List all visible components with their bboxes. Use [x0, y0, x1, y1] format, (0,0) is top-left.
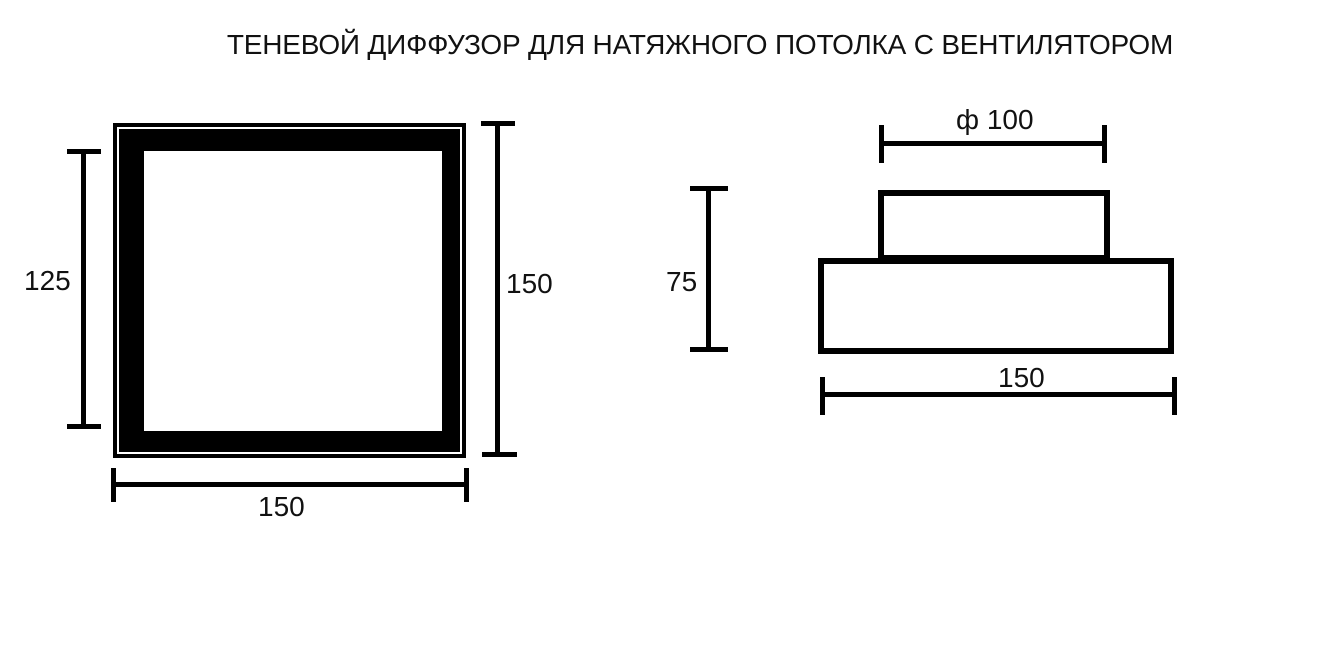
dim-line — [706, 188, 711, 350]
dim-line — [113, 482, 467, 487]
drawing-canvas: ТЕНЕВОЙ ДИФФУЗОР ДЛЯ НАТЯЖНОГО ПОТОЛКА С… — [0, 0, 1328, 669]
dim-tick — [1102, 125, 1107, 163]
dim-label-side-diameter: ф 100 — [956, 104, 1034, 136]
dim-line — [495, 123, 500, 455]
front-view-opening — [144, 151, 442, 431]
front-view-frame — [119, 129, 460, 452]
drawing-title: ТЕНЕВОЙ ДИФФУЗОР ДЛЯ НАТЯЖНОГО ПОТОЛКА С… — [227, 29, 1173, 61]
dim-tick — [1172, 377, 1177, 415]
front-view-outer-square — [113, 123, 466, 458]
side-view-duct-rect — [878, 190, 1110, 261]
dim-front-inner-height — [66, 149, 102, 429]
dim-label-side-height: 75 — [666, 266, 697, 298]
dim-tick — [482, 452, 517, 457]
dim-label-side-width: 150 — [998, 362, 1045, 394]
dim-tick — [67, 424, 101, 429]
side-view-body-rect — [818, 258, 1174, 354]
dim-label-front-inner-height: 125 — [24, 265, 71, 297]
dim-tick — [690, 347, 728, 352]
dim-label-front-outer-height: 150 — [506, 268, 553, 300]
dim-label-front-outer-width: 150 — [258, 491, 305, 523]
dim-line — [81, 151, 86, 427]
dim-line — [881, 141, 1105, 146]
dim-tick — [464, 468, 469, 502]
